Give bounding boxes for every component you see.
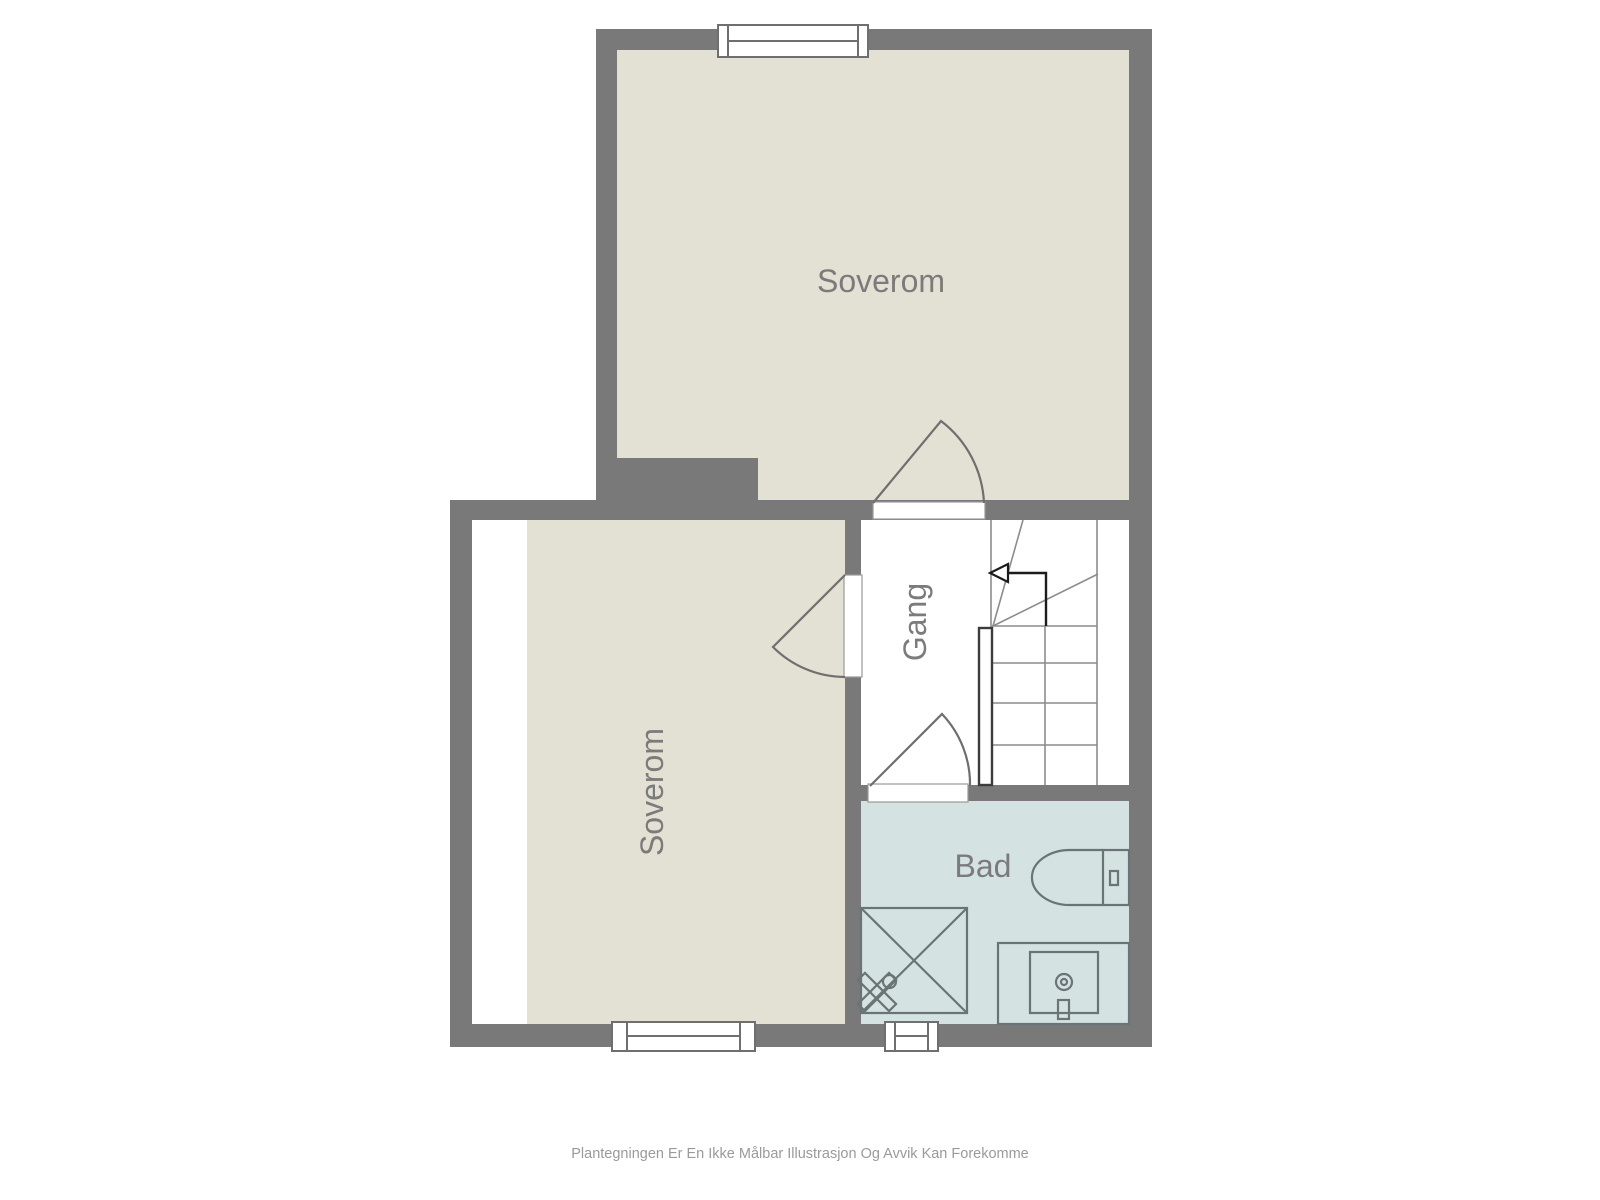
door-opening-top-bedroom (873, 502, 985, 519)
floor-plan: Soverom Soverom Gang Bad (0, 0, 1600, 1200)
floor-plan-page: Soverom Soverom Gang Bad Plantegningen E… (0, 0, 1600, 1200)
stair-railing (979, 628, 992, 785)
wall-junction (450, 500, 1129, 520)
bedroom-lower-label: Soverom (634, 728, 670, 856)
wall-bottom (450, 1024, 1152, 1047)
door-opening-lower-bedroom (844, 575, 862, 677)
wall-top (596, 29, 1152, 50)
bedroom-top-label: Soverom (817, 263, 945, 299)
window-lower-bedroom (612, 1022, 755, 1051)
window-top-bedroom (718, 25, 868, 57)
bathroom-floor (861, 801, 1129, 1024)
door-opening-bathroom (868, 784, 968, 802)
disclaimer-text: Plantegningen Er En Ikke Målbar Illustra… (0, 1146, 1600, 1162)
wall-right (1129, 29, 1152, 1047)
bedroom-lower-floor (527, 520, 845, 1024)
floors (472, 50, 1129, 1024)
bathroom-label: Bad (955, 848, 1012, 884)
hallway-label: Gang (897, 583, 933, 661)
wall-lower-left (450, 500, 472, 1047)
window-bathroom (885, 1022, 938, 1051)
wall-top-left (596, 29, 617, 520)
